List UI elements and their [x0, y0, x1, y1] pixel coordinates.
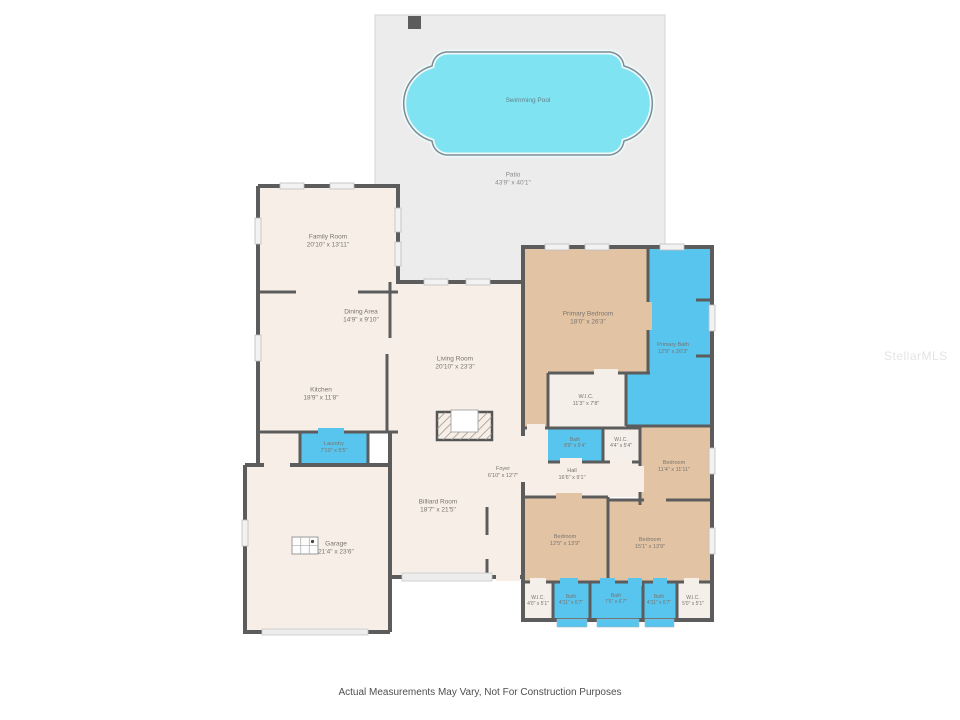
swimming-pool-shape	[404, 52, 653, 155]
window-marker	[660, 244, 684, 250]
door-opening	[483, 535, 491, 559]
disclaimer-text: Actual Measurements May Vary, Not For Co…	[0, 687, 960, 698]
bath-bottom-center-floor	[590, 582, 643, 620]
watermark: StellarMLS	[884, 349, 948, 363]
window-marker	[466, 279, 490, 285]
door-opening	[560, 458, 582, 466]
bath-bottom-right-floor	[643, 582, 677, 620]
door-opening	[556, 493, 582, 501]
window-tab	[557, 619, 587, 627]
door-opening	[600, 578, 615, 586]
billiard-foyer-floor	[390, 430, 523, 577]
door-opening	[610, 458, 632, 466]
door-opening	[594, 369, 618, 377]
exterior-blue-tabs	[557, 619, 674, 627]
wic-primary-floor	[548, 373, 626, 428]
door-opening	[636, 466, 644, 492]
window-marker	[585, 244, 609, 250]
wic-hall-floor	[603, 428, 640, 462]
bedroom-left-floor	[523, 497, 608, 582]
door-opening	[644, 302, 652, 330]
bay-window-marker	[402, 573, 492, 581]
door-opening	[644, 496, 666, 504]
bedroom-right-floor	[640, 426, 712, 500]
window-marker	[709, 528, 715, 554]
window-marker	[545, 244, 569, 250]
window-tab	[645, 619, 674, 627]
window-marker	[255, 218, 261, 244]
mud-area-floor	[258, 432, 300, 466]
window-marker	[424, 279, 448, 285]
fireplace-icon	[437, 410, 492, 440]
window-marker	[255, 335, 261, 361]
door-opening	[560, 578, 578, 586]
garage-grid-dot	[311, 540, 314, 543]
bath-hall-floor	[548, 428, 603, 462]
bedroom-center-floor	[608, 500, 712, 582]
bath-bottom-left-floor	[553, 582, 590, 620]
window-marker	[395, 208, 401, 232]
door-opening	[653, 578, 667, 586]
floor-plan-drawing	[0, 0, 960, 720]
family-room-floor	[258, 186, 398, 292]
door-opening	[684, 578, 699, 586]
floor-plan: Swimming Pool Patio 43'9" x 40'1" Family…	[0, 0, 960, 720]
window-marker	[242, 520, 248, 546]
garage-grid-icon	[292, 537, 318, 554]
garage-door-marker	[262, 629, 368, 635]
door-opening	[496, 573, 520, 581]
window-marker	[709, 448, 715, 474]
window-tab	[597, 619, 639, 627]
laundry-floor	[300, 432, 368, 466]
window-marker	[280, 183, 304, 189]
door-opening	[318, 428, 344, 436]
door-opening	[264, 461, 290, 469]
window-marker	[330, 183, 354, 189]
door-opening	[527, 424, 545, 432]
fireplace-opening	[451, 410, 478, 432]
window-marker	[709, 305, 715, 331]
door-opening	[628, 578, 642, 586]
window-marker	[395, 242, 401, 266]
patio-post	[408, 16, 421, 29]
door-opening	[530, 578, 546, 586]
door-opening	[519, 436, 527, 482]
